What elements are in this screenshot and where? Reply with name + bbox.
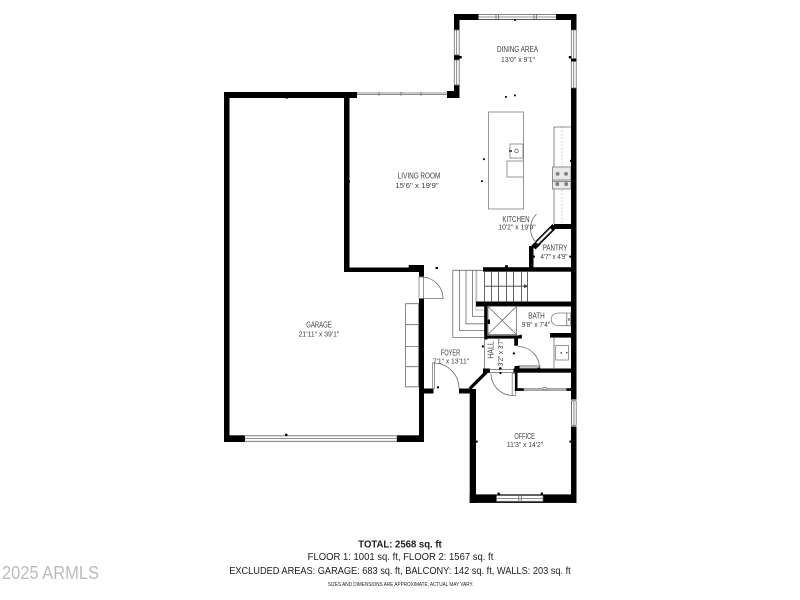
svg-text:FLOOR 1: 1001 sq. ft, FLOOR 2:: FLOOR 1: 1001 sq. ft, FLOOR 2: 1567 sq. … — [308, 551, 494, 563]
svg-text:13'0" x 9'1": 13'0" x 9'1" — [501, 55, 535, 64]
svg-text:LIVING ROOM: LIVING ROOM — [398, 172, 441, 181]
svg-text:HALL: HALL — [487, 341, 496, 359]
svg-text:11'3" x 14'2": 11'3" x 14'2" — [507, 440, 544, 449]
svg-text:2025 ARMLS: 2025 ARMLS — [2, 563, 99, 583]
svg-text:EXCLUDED AREAS: GARAGE: 683 sq: EXCLUDED AREAS: GARAGE: 683 sq. ft, BALC… — [229, 565, 571, 577]
svg-text:4'7" x 4'9": 4'7" x 4'9" — [541, 252, 568, 261]
svg-text:7'1" x 13'11": 7'1" x 13'11" — [433, 357, 470, 366]
svg-text:DINING AREA: DINING AREA — [497, 45, 539, 54]
svg-text:GARAGE: GARAGE — [306, 321, 332, 330]
svg-text:TOTAL: 2568 sq. ft: TOTAL: 2568 sq. ft — [358, 539, 442, 551]
svg-text:9'8" x 7'4": 9'8" x 7'4" — [522, 320, 551, 329]
svg-text:3'2" x 3'7": 3'2" x 3'7" — [496, 338, 505, 366]
svg-text:15'6" x 19'9": 15'6" x 19'9" — [395, 181, 439, 190]
svg-text:21'11" x 39'1": 21'11" x 39'1" — [299, 330, 340, 339]
svg-text:SIZES AND DIMENSIONS ARE APPRO: SIZES AND DIMENSIONS ARE APPROXIMATE, AC… — [328, 582, 474, 588]
